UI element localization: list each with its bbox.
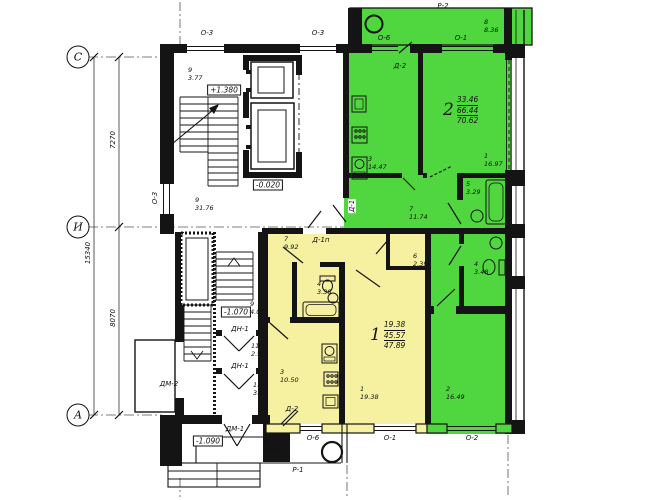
opening-label-o3-top-left: О-3: [201, 29, 214, 37]
elevator-cab-large: [251, 103, 294, 169]
opening-label-dm2: ДМ-2: [160, 380, 179, 388]
opening-label-d2-top: Д-2: [394, 62, 406, 70]
stairs-upper: [172, 97, 238, 186]
opening-label-d2-bottom: Д-2: [286, 405, 298, 413]
porch-column: [322, 442, 342, 462]
opening-label-o1-top: О-1: [455, 34, 468, 42]
opening-label-p1: Р-1: [292, 466, 303, 474]
axis-marker-c: С: [67, 46, 90, 69]
room-label-green-room2: 216.49: [446, 386, 465, 401]
axis-marker-a: А: [67, 404, 90, 427]
room-label-green-wc: 43.48: [474, 261, 488, 276]
opening-label-d1p: Д-1п: [312, 236, 329, 244]
room-label-yellow-kitchen: 310.50: [280, 369, 299, 384]
room-label-yellow-room: 119.38: [360, 386, 379, 401]
entrance-recess: [135, 340, 175, 412]
opening-label-o3-top-right: О-3: [312, 29, 325, 37]
opening-label-o6-bottom: О-6: [307, 434, 320, 442]
dimension-15340: 15340: [84, 241, 92, 265]
opening-label-dn1-upper: ДН-1: [231, 325, 249, 333]
room-label-yellow-hall: 79.92: [284, 236, 298, 251]
dimension-7270: 7270: [109, 130, 117, 150]
elevation-ground: -0.020: [253, 180, 283, 191]
opening-label-o1-bottom: О-1: [384, 434, 397, 442]
axis-marker-i: И: [67, 216, 90, 239]
opening-label-dm1: ДМ-1: [226, 425, 245, 433]
room-label-vestibule2: 113.91: [253, 382, 267, 397]
room-label-stair-landing: 93.77: [188, 67, 202, 82]
room-label-green-room1: 116.97: [484, 153, 503, 168]
room-label-vestibule1: 112.94: [251, 343, 265, 358]
room-label-green-hall: 711.74: [409, 206, 428, 221]
dimension-8070: 8070: [109, 308, 117, 328]
elevators: [243, 55, 302, 178]
elevation-entry: -1.090: [193, 436, 223, 447]
room-label-green-kitchen: 314.47: [368, 156, 387, 171]
apartment-2-label: 2 33.46 66.44 70.62: [443, 95, 478, 126]
room-label-green-bath: 53.29: [466, 181, 480, 196]
room-label-green-balcony: 88.36: [484, 19, 498, 34]
opening-label-d1: Д-1: [348, 199, 356, 213]
opening-label-o3-side: О-3: [151, 191, 159, 206]
elevation-lobby: -1.070: [221, 307, 251, 318]
opening-label-o2-bottom: О-2: [466, 434, 479, 442]
porch: [168, 424, 347, 487]
room-label-yellow-bath: 43.38: [317, 281, 331, 296]
opening-label-o6-top: О-6: [378, 34, 391, 42]
room-label-lobby: 94.07: [250, 301, 264, 316]
room-label-porch: 84.64: [264, 439, 278, 454]
opening-label-p2: Р-2: [437, 2, 448, 10]
stairs-lower: [135, 232, 253, 415]
room-label-yellow-closet: 62.39: [413, 253, 427, 268]
elevation-stair-mid: +1.380: [207, 85, 241, 96]
room-label-corridor: 931.76: [195, 197, 214, 212]
floor-plan: С И А 7270 15340 8070 Р-2 О-3 О-3 О-6 О-…: [0, 0, 650, 500]
opening-label-dn1-lower: ДН-1: [231, 362, 249, 370]
apartment-1-label: 1 19.38 45.57 47.89: [370, 320, 405, 351]
floor-plan-drawing: [0, 0, 650, 500]
